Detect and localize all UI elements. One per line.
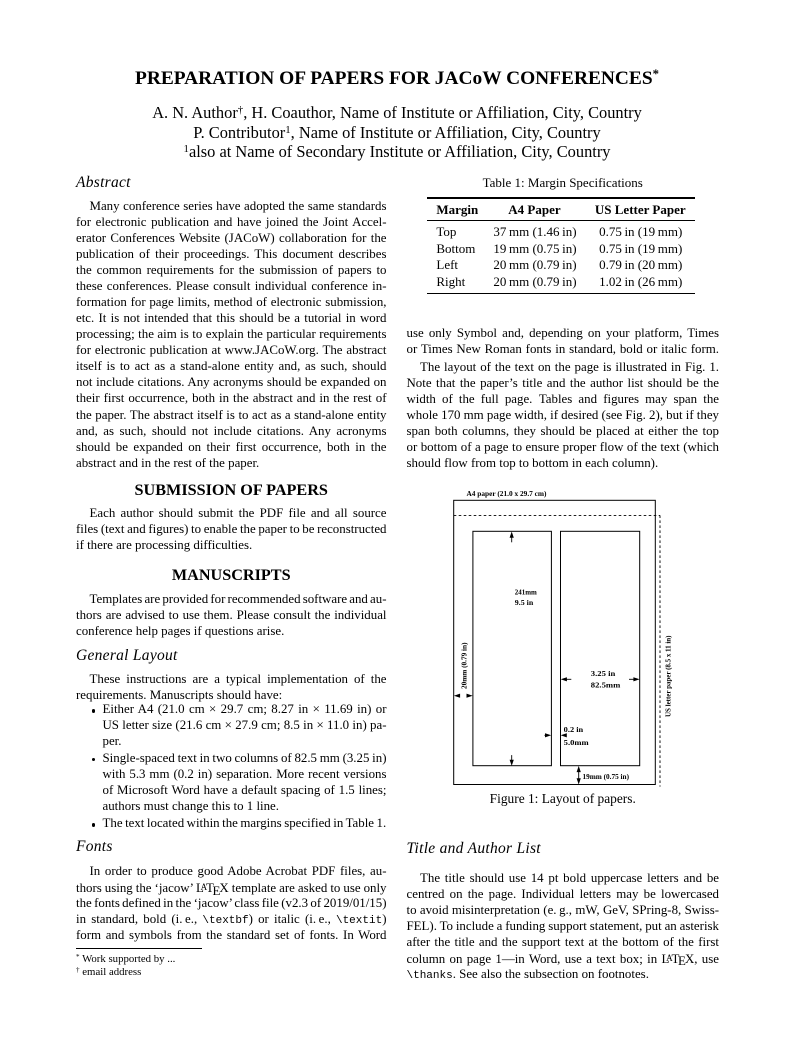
svg-text:241mm: 241mm	[515, 588, 537, 597]
svg-text:US letter paper (8.5 x 11 in): US letter paper (8.5 x 11 in)	[663, 635, 672, 717]
svg-text:0.2 in: 0.2 in	[564, 725, 584, 734]
svg-text:9.5 in: 9.5 in	[515, 598, 534, 607]
svg-text:19mm (0.75 in): 19mm (0.75 in)	[583, 772, 630, 781]
svg-text:82.5mm: 82.5mm	[591, 680, 621, 689]
svg-text:5.0mm: 5.0mm	[564, 738, 590, 747]
svg-text:20mm (0.79 in): 20mm (0.79 in)	[460, 642, 469, 689]
svg-text:3.25 in: 3.25 in	[591, 669, 616, 678]
svg-text:A4 paper (21.0 x 29.7 cm): A4 paper (21.0 x 29.7 cm)	[467, 489, 547, 498]
